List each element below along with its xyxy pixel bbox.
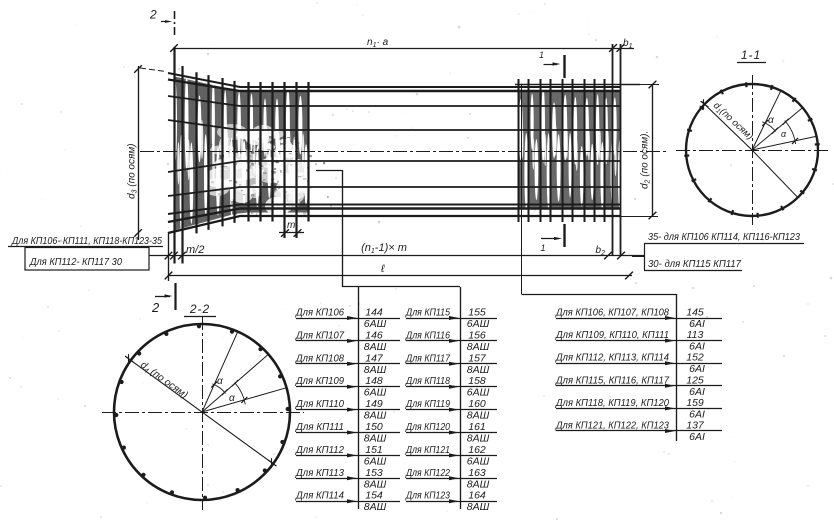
svg-text:Для КП112, КП113, КП114: Для КП112, КП113, КП114 [555, 352, 669, 364]
svg-text:Для КП112: Для КП112 [295, 444, 344, 456]
svg-text:125: 125 [686, 374, 704, 386]
svg-text:155: 155 [468, 307, 486, 319]
svg-text:144: 144 [365, 307, 383, 319]
svg-text:2: 2 [149, 8, 157, 22]
svg-text:m: m [287, 220, 295, 231]
svg-text:Для КП106- КП111, КП118-КП123-: Для КП106- КП111, КП118-КП123-35 [11, 235, 162, 247]
svg-text:Для КП120: Для КП120 [405, 421, 450, 433]
svg-text:160: 160 [468, 398, 486, 410]
svg-text:2: 2 [151, 300, 160, 315]
svg-text:6АШ: 6АШ [467, 387, 490, 399]
svg-text:6АШ: 6АШ [364, 387, 387, 399]
svg-text:Для КП108: Для КП108 [295, 352, 344, 364]
svg-text:8АШ: 8АШ [364, 478, 387, 490]
svg-text:m/2: m/2 [186, 244, 204, 256]
svg-text:6АШ: 6АШ [364, 318, 387, 330]
svg-text:Для КП113: Для КП113 [295, 467, 344, 479]
svg-text:162: 162 [468, 444, 486, 456]
svg-text:148: 148 [365, 375, 383, 387]
svg-text:8АШ: 8АШ [364, 341, 387, 353]
svg-text:161: 161 [468, 421, 486, 433]
svg-text:Для КП116: Для КП116 [405, 329, 450, 341]
svg-text:156: 156 [468, 329, 486, 341]
svg-text:Для КП106: Для КП106 [295, 307, 344, 319]
svg-text:8АШ: 8АШ [467, 433, 490, 445]
svg-text:8АШ: 8АШ [364, 364, 387, 376]
svg-text:8АШ: 8АШ [467, 364, 490, 376]
svg-text:158: 158 [468, 375, 486, 387]
svg-text:α: α [217, 376, 223, 387]
svg-text:Для КП106, КП107, КП108: Для КП106, КП107, КП108 [555, 307, 669, 319]
svg-text:1: 1 [539, 50, 544, 60]
svg-text:Для КП111: Для КП111 [295, 421, 344, 433]
svg-text:151: 151 [365, 444, 383, 456]
svg-text:Для КП110: Для КП110 [295, 398, 344, 410]
svg-text:146: 146 [365, 329, 383, 341]
svg-text:149: 149 [365, 398, 383, 410]
svg-text:150: 150 [365, 421, 383, 433]
svg-text:152: 152 [686, 352, 704, 364]
svg-text:6АШ: 6АШ [467, 318, 490, 330]
svg-text:8АШ: 8АШ [364, 501, 387, 513]
svg-text:137: 137 [686, 420, 705, 432]
svg-text:(n1-1)× m: (n1-1)× m [361, 242, 407, 255]
svg-text:Для КП122: Для КП122 [405, 467, 450, 479]
svg-text:ℓ: ℓ [380, 263, 385, 275]
svg-text:6АI: 6АI [689, 431, 705, 443]
svg-text:35- для КП106 КП114, КП116-КП: 35- для КП106 КП114, КП116-КП123 [648, 232, 800, 243]
svg-text:Для КП118: Для КП118 [405, 375, 450, 387]
svg-text:α: α [229, 393, 235, 404]
svg-text:Для КП118, КП119, КП120: Для КП118, КП119, КП120 [555, 397, 669, 409]
svg-text:147: 147 [365, 352, 384, 364]
svg-text:153: 153 [365, 467, 383, 479]
svg-text:157: 157 [468, 352, 487, 364]
svg-text:Для КП114: Для КП114 [295, 490, 344, 502]
svg-text:30- для КП115 КП117: 30- для КП115 КП117 [648, 259, 741, 270]
svg-text:163: 163 [468, 467, 486, 479]
svg-text:Для КП107: Для КП107 [295, 329, 345, 341]
svg-text:Для КП112- КП117 30: Для КП112- КП117 30 [29, 256, 122, 268]
svg-text:164: 164 [468, 490, 486, 502]
svg-text:154: 154 [365, 490, 383, 502]
svg-text:Для КП119: Для КП119 [405, 398, 450, 410]
svg-text:Для КП115: Для КП115 [405, 307, 450, 319]
svg-text:Для КП123: Для КП123 [405, 490, 450, 502]
svg-text:Для КП121: Для КП121 [405, 444, 450, 456]
svg-text:1: 1 [541, 243, 546, 253]
svg-text:145: 145 [686, 307, 704, 319]
svg-text:1-1: 1-1 [741, 48, 761, 62]
svg-text:8АШ: 8АШ [467, 478, 490, 490]
svg-text:8АШ: 8АШ [467, 410, 490, 422]
svg-text:8АШ: 8АШ [467, 501, 490, 513]
svg-text:8АШ: 8АШ [364, 410, 387, 422]
svg-text:α: α [781, 129, 787, 139]
svg-text:8АШ: 8АШ [364, 433, 387, 445]
svg-text:Для КП109, КП110, КП111: Для КП109, КП110, КП111 [555, 329, 669, 341]
svg-text:2-2: 2-2 [189, 302, 210, 316]
svg-text:Для КП115, КП116, КП117: Для КП115, КП116, КП117 [555, 374, 670, 386]
svg-text:Для КП121, КП122, КП123: Для КП121, КП122, КП123 [555, 420, 669, 432]
svg-text:Для КП109: Для КП109 [295, 375, 344, 387]
svg-text:α: α [768, 115, 774, 126]
svg-text:113: 113 [687, 329, 704, 341]
svg-text:n1· a: n1· a [367, 37, 389, 49]
svg-text:6АШ: 6АШ [467, 455, 490, 467]
svg-text:Для КП117: Для КП117 [405, 352, 451, 364]
svg-text:159: 159 [686, 397, 704, 409]
svg-text:8АШ: 8АШ [467, 341, 490, 353]
svg-text:d2 (по осям).: d2 (по осям). [640, 131, 652, 189]
svg-text:6АШ: 6АШ [364, 455, 387, 467]
